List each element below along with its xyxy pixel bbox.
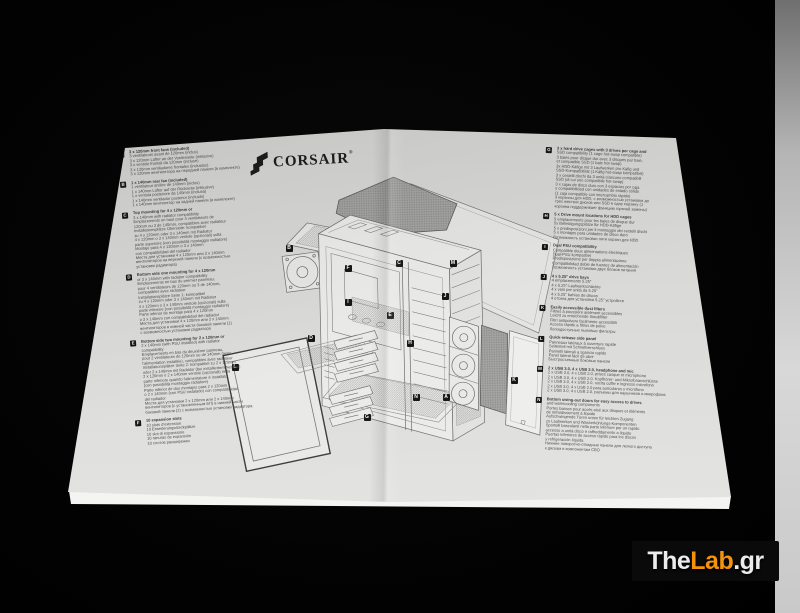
spec-section-f: F10 expansion slots10 slots d'extension1… [135, 408, 318, 446]
section-letter-badge: N [536, 397, 542, 403]
spec-section-j: J4 x 5.25" drive bays4 emplacements 5.25… [540, 274, 737, 309]
diagram-callout-a: A [443, 394, 450, 401]
diagram-callout-k: K [511, 377, 518, 384]
manual-leaflet: CORSAIR® [0, 0, 800, 613]
section-letter-badge: M [537, 366, 543, 372]
section-letter-badge: B [120, 182, 126, 188]
section-letter-badge: I [542, 243, 548, 249]
spec-section-g: G3 x hard drive cages with 3 drives per … [543, 146, 741, 216]
section-letter-badge: E [130, 340, 136, 346]
section-letter-badge: A [118, 151, 124, 157]
section-letter-badge: D [126, 274, 132, 280]
diagram-callout-h: H [407, 340, 414, 347]
section-letter-badge: K [539, 305, 545, 311]
section-letter-badge: H [543, 213, 549, 219]
spec-section-m: M2 x USB 3.0, 4 x USB 2.0, headphone and… [536, 366, 733, 401]
diagram-callout-f: F [345, 265, 352, 272]
diagram-callout-m: M [450, 260, 457, 267]
front-filter-drawing [479, 325, 510, 415]
light-spill-band [775, 0, 800, 613]
spec-section-c: CTop mounting for 4 x 120mm or3 x 140mm … [122, 201, 307, 270]
spec-column-right: G3 x hard drive cages with 3 drives per … [534, 146, 742, 462]
spec-section-h: H5 x Drive mount locations for HDD cages… [542, 212, 739, 247]
spec-section-k: KEasily accessible dust filtersFiltres à… [539, 304, 736, 339]
spec-section-l: LQuick-release side panelPanneaux latéra… [537, 335, 734, 370]
spec-section-d: DBottom side one mounting for 4 x 120mmo… [126, 263, 312, 337]
watermark-lab: Lab [690, 547, 733, 576]
spec-section-e: EBottom side two mounting for 2 x 120mm … [130, 329, 316, 416]
watermark-gr: .gr [733, 547, 763, 576]
center-fold-crease [369, 127, 405, 507]
spec-section-n: NBottom swing-out doors for easy access … [534, 396, 732, 457]
photo-of-corsair-manual: CORSAIR® [0, 0, 800, 613]
spec-section-i: IDual PSU compatibilityCompatible deux a… [541, 243, 738, 278]
front-fans-drawing [447, 316, 480, 411]
diagram-callout-n: N [413, 394, 420, 401]
diagram-callout-j: J [442, 293, 449, 300]
diagram-callout-i: I [345, 299, 352, 306]
watermark-the: The [647, 547, 690, 576]
section-letter-badge: F [135, 420, 141, 426]
section-letter-badge: G [546, 146, 552, 152]
spec-column-left: A3 x 120mm front fans (included)3 ventil… [118, 140, 318, 451]
thelab-watermark: TheLab.gr [632, 541, 779, 581]
section-letter-badge: J [541, 274, 547, 280]
section-letter-badge: C [122, 212, 128, 218]
section-letter-badge: L [538, 336, 544, 342]
